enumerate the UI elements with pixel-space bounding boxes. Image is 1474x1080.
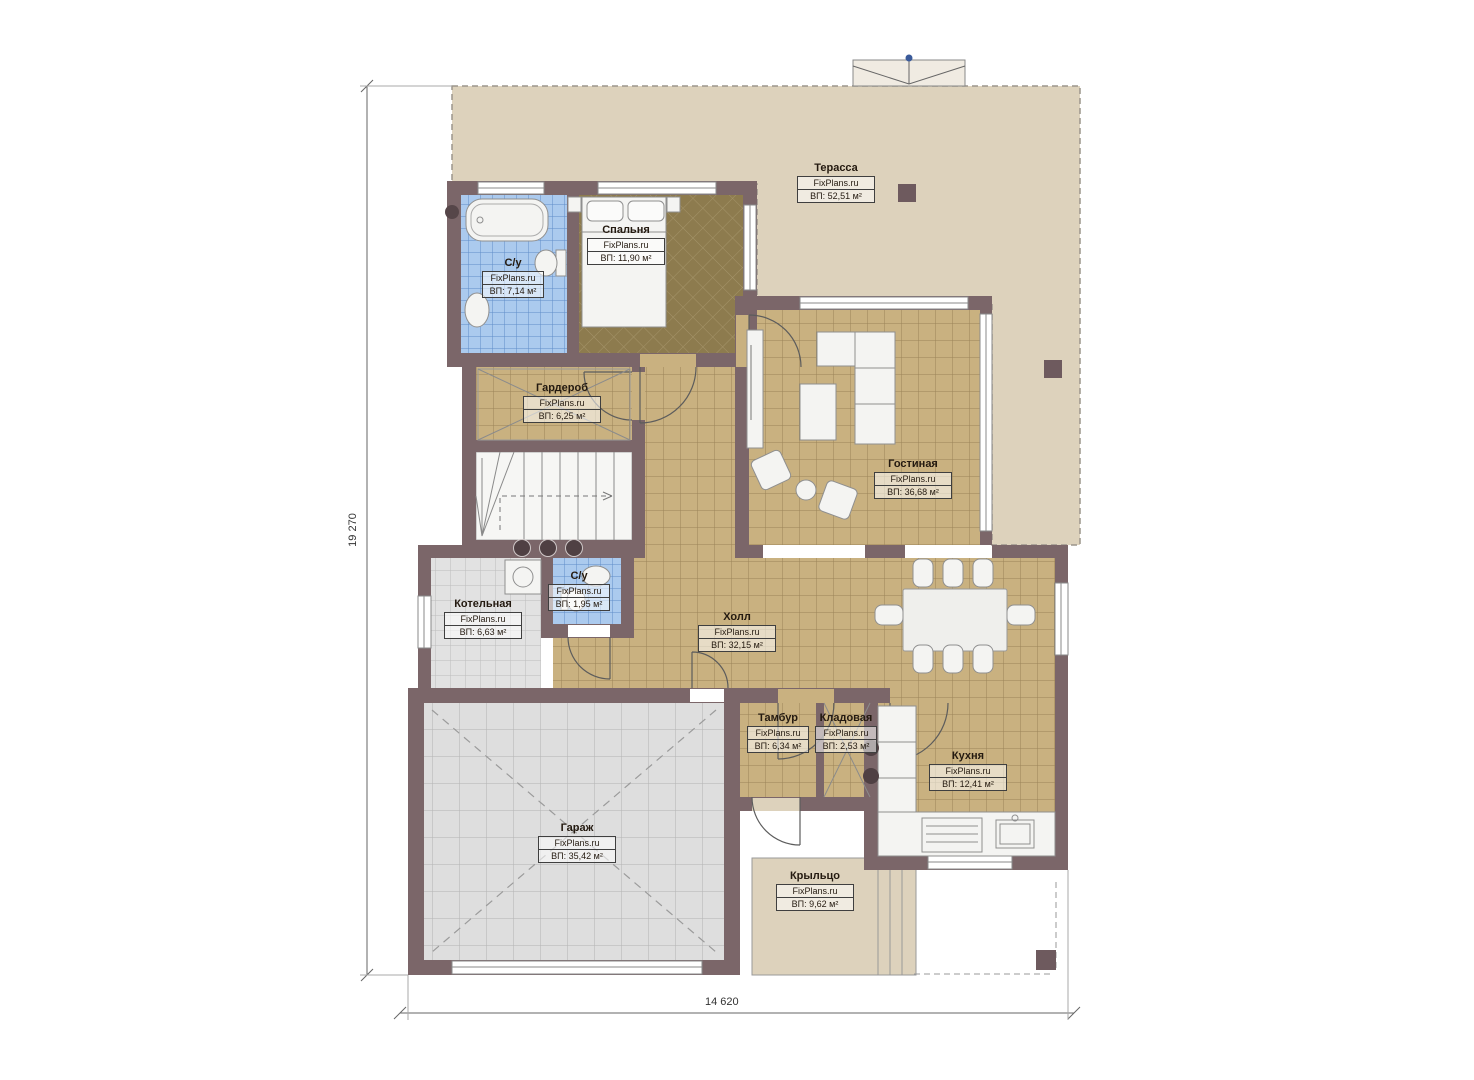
floor-plan-drawing [0, 0, 1474, 1080]
watermark: FixPlans.ru [549, 585, 609, 598]
room-name: Холл [698, 611, 776, 623]
room-area: ВП: 6,25 м² [524, 410, 600, 422]
watermark: FixPlans.ru [777, 885, 853, 898]
terrace-column [1044, 360, 1062, 378]
porch-steps [878, 858, 916, 975]
watermark: FixPlans.ru [524, 397, 600, 410]
watermark: FixPlans.ru [588, 239, 664, 252]
room-area: ВП: 12,41 м² [930, 778, 1006, 790]
room-name: Котельная [444, 598, 522, 610]
room-area: ВП: 52,51 м² [798, 190, 874, 202]
room-name: Гараж [538, 822, 616, 834]
tv-console [747, 330, 763, 448]
room-area: ВП: 32,15 м² [699, 639, 775, 651]
watermark: FixPlans.ru [483, 272, 543, 285]
watermark: FixPlans.ru [748, 727, 808, 740]
washer [505, 560, 541, 594]
watermark: FixPlans.ru [445, 613, 521, 626]
room-name: Крыльцо [776, 870, 854, 882]
room-name: Гардероб [523, 382, 601, 394]
dimension-vertical: 19 270 [347, 513, 359, 547]
room-label-hall: Холл FixPlans.ruВП: 32,15 м² [698, 611, 776, 652]
room-label-porch: Крыльцо FixPlans.ruВП: 9,62 м² [776, 870, 854, 911]
room-label-bathroom-small: С/у FixPlans.ruВП: 1,95 м² [548, 570, 610, 611]
room-label-garage: Гараж FixPlans.ruВП: 35,42 м² [538, 822, 616, 863]
watermark: FixPlans.ru [816, 727, 876, 740]
porch-column [1036, 950, 1056, 970]
terrace-column [898, 184, 916, 202]
room-label-kitchen: Кухня FixPlans.ruВП: 12,41 м² [929, 750, 1007, 791]
wall-fixture [445, 205, 459, 219]
watermark: FixPlans.ru [699, 626, 775, 639]
bathtub [466, 199, 548, 241]
room-label-living-room: Гостиная FixPlans.ruВП: 36,68 м² [874, 458, 952, 499]
site-boundary [914, 878, 1056, 974]
watermark: FixPlans.ru [930, 765, 1006, 778]
corridor-floor [645, 367, 735, 558]
stairs-floor [476, 452, 632, 540]
room-name: Терасса [797, 162, 875, 174]
room-name: Кладовая [815, 712, 877, 724]
watermark: FixPlans.ru [539, 837, 615, 850]
room-area: ВП: 6,34 м² [748, 740, 808, 752]
floor-plan: Терасса FixPlans.ruВП: 52,51 м² Спальня … [0, 0, 1474, 1080]
room-area: ВП: 7,14 м² [483, 285, 543, 297]
room-label-bedroom: Спальня FixPlans.ruВП: 11,90 м² [587, 224, 665, 265]
room-area: ВП: 36,68 м² [875, 486, 951, 498]
dimension-horizontal: 14 620 [705, 996, 739, 1008]
gable-marker-dot [906, 55, 913, 62]
room-area: ВП: 6,63 м² [445, 626, 521, 638]
room-area: ВП: 2,53 м² [816, 740, 876, 752]
room-name: Гостиная [874, 458, 952, 470]
column-trio [514, 540, 583, 557]
room-label-boiler-room: Котельная FixPlans.ruВП: 6,63 м² [444, 598, 522, 639]
room-name: Тамбур [747, 712, 809, 724]
room-label-wardrobe: Гардероб FixPlans.ruВП: 6,25 м² [523, 382, 601, 423]
watermark: FixPlans.ru [875, 473, 951, 486]
room-name: С/у [482, 257, 544, 269]
watermark: FixPlans.ru [798, 177, 874, 190]
room-label-bathroom-main: С/у FixPlans.ruВП: 7,14 м² [482, 257, 544, 298]
room-label-pantry: Кладовая FixPlans.ruВП: 2,53 м² [815, 712, 877, 753]
sink-main [465, 293, 489, 327]
roof-gable-symbol [853, 55, 965, 87]
side-table [796, 480, 816, 500]
room-name: С/у [548, 570, 610, 582]
room-area: ВП: 1,95 м² [549, 598, 609, 610]
room-label-vestibule: Тамбур FixPlans.ruВП: 6,34 м² [747, 712, 809, 753]
room-area: ВП: 9,62 м² [777, 898, 853, 910]
room-name: Спальня [587, 224, 665, 236]
room-area: ВП: 11,90 м² [588, 252, 664, 264]
room-label-terrace: Терасса FixPlans.ruВП: 52,51 м² [797, 162, 875, 203]
room-area: ВП: 35,42 м² [539, 850, 615, 862]
room-name: Кухня [929, 750, 1007, 762]
coffee-table [800, 384, 836, 440]
